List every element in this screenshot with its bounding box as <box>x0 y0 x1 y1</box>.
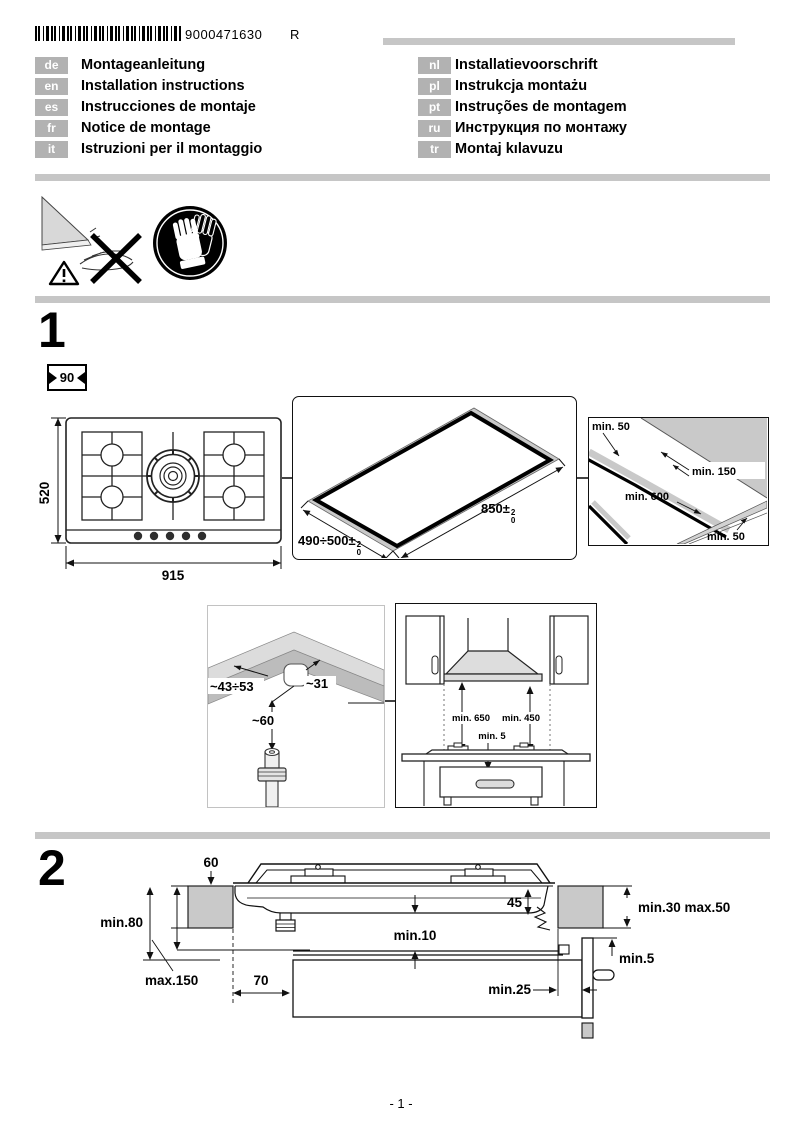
connector-line <box>385 700 395 702</box>
clearance-diagram-panel: min. 50 min. 150 min. 600 min. 50 <box>588 417 769 546</box>
corner-left-label: ~43÷53 <box>210 679 254 694</box>
pan-support-profile <box>248 864 550 883</box>
wear-gloves-icon <box>150 203 230 283</box>
connector-line <box>577 477 588 479</box>
corner-depth-label: ~60 <box>252 713 274 728</box>
dim-front-label: 70 <box>253 973 268 988</box>
cutout-depth-label: 850±20 <box>481 501 515 525</box>
corner-detail-panel: ~43÷53 ~31 ~60 <box>207 605 385 808</box>
installation-cross-section-diagram: 60 min.80 max.150 70 min.10 45 <box>85 843 775 1048</box>
hood-height-label: min. 650 <box>452 713 490 724</box>
barcode-icon <box>35 26 182 41</box>
section-1-number: 1 <box>38 305 66 355</box>
lang-badge-fr: fr <box>35 120 68 137</box>
lang-title-pl: Instrukcja montażu <box>455 78 587 95</box>
lang-title-tr: Montaj kılavuzu <box>455 141 563 158</box>
lang-title-de: Montageanleitung <box>81 57 205 74</box>
lang-title-nl: Installatievoorschrift <box>455 57 598 74</box>
cross-out-icon <box>92 235 140 282</box>
hob-top-view-diagram: 520 915 <box>38 405 293 583</box>
lang-badge-pl: pl <box>418 78 451 95</box>
corner-right-label: ~31 <box>306 676 328 691</box>
worktop-section-left <box>188 886 233 928</box>
header-divider-bar <box>383 38 735 45</box>
dim-gap-back-label: min.25 <box>488 982 531 997</box>
dim-depth-label: 45 <box>507 895 523 910</box>
lang-title-en: Installation instructions <box>81 78 245 95</box>
control-knobs <box>134 532 206 540</box>
lang-badge-ru: ru <box>418 120 451 137</box>
dim-915 <box>66 546 281 569</box>
cabinet-knob <box>593 970 614 980</box>
clearance-right-label: min. 150 <box>692 466 736 478</box>
clearance-diagram: min. 50 min. 150 min. 600 min. 50 <box>589 418 767 544</box>
corner-detail-diagram: ~43÷53 ~31 ~60 <box>208 606 384 807</box>
width-class-value: 90 <box>60 370 74 385</box>
dim-520 <box>51 418 66 543</box>
divider-1 <box>35 174 770 181</box>
dim-clearance-mid-label: min.10 <box>394 928 437 943</box>
page-number: - 1 - <box>0 1096 802 1111</box>
drawer-front <box>293 960 582 1017</box>
badge-arrow-left-icon <box>77 372 85 384</box>
hood-clearance-panel: min. 650 min. 450 min. 5 <box>395 603 597 808</box>
hob-depth-label: 520 <box>38 482 52 505</box>
lang-badge-es: es <box>35 99 68 116</box>
barcode-number: 9000471630 <box>185 27 262 42</box>
warning-triangle-icon <box>50 262 78 284</box>
lang-badge-en: en <box>35 78 68 95</box>
cutout-diagram-panel: 490÷500±20 850±20 <box>292 396 577 560</box>
lang-badge-de: de <box>35 57 68 74</box>
lang-title-ru: Инструкция по монтажу <box>455 120 627 137</box>
lang-title-it: Istruzioni per il montaggio <box>81 141 262 158</box>
hob-width-label: 915 <box>162 568 185 583</box>
clearance-top-left-label: min. 50 <box>592 421 630 433</box>
dim-thickness-label: min.30 max.50 <box>638 900 730 915</box>
worktop-section-right <box>558 886 603 928</box>
hob-body-profile <box>235 886 548 913</box>
clearance-bottom-right-label: min. 50 <box>707 531 745 543</box>
gas-pipe <box>258 749 286 808</box>
badge-arrow-right-icon <box>49 372 57 384</box>
lang-title-es: Instrucciones de montaje <box>81 99 256 116</box>
fixing-clamp <box>535 907 550 930</box>
dim-gap-side-label: min.5 <box>619 951 655 966</box>
gas-valve <box>276 913 295 931</box>
wok-burner <box>142 432 204 520</box>
divider-3 <box>35 832 770 839</box>
divider-2 <box>35 296 770 303</box>
worktop <box>402 754 590 761</box>
base-cabinet <box>424 761 564 806</box>
manual-page: 9000471630 R de Montageanleitung en Inst… <box>0 0 802 1134</box>
cabinet-height-label: min. 450 <box>502 713 540 724</box>
lang-badge-it: it <box>35 141 68 158</box>
dim-overhang-label: 60 <box>203 855 218 870</box>
cutout-width-label: 490÷500±20 <box>298 533 361 557</box>
revision-code: R <box>290 27 300 42</box>
lang-badge-pt: pt <box>418 99 451 116</box>
hood-clearance-diagram: min. 650 min. 450 min. 5 <box>396 604 595 806</box>
lang-title-pt: Instruções de montagem <box>455 99 627 116</box>
lang-title-fr: Notice de montage <box>81 120 211 137</box>
dim-left-max-label: max.150 <box>145 973 198 988</box>
extractor-hood <box>442 618 542 681</box>
lang-badge-tr: tr <box>418 141 451 158</box>
clearance-center-label: min. 600 <box>625 491 669 503</box>
cabinet-side-panel <box>582 938 593 1018</box>
dim-left-min-label: min.80 <box>100 915 143 930</box>
hob-gap-label: min. 5 <box>478 731 506 742</box>
connector-line <box>282 477 292 479</box>
section-2-number: 2 <box>38 843 66 893</box>
lang-badge-nl: nl <box>418 57 451 74</box>
hob-profile <box>426 743 568 754</box>
width-class-badge: 90 <box>47 364 87 391</box>
